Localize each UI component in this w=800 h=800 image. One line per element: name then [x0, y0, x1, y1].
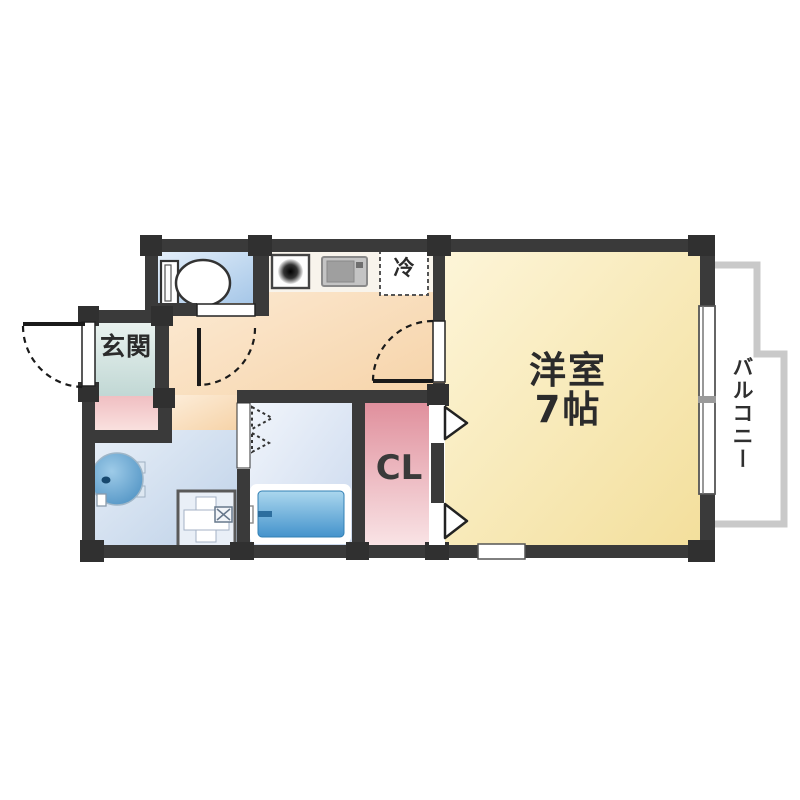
toilet-door-jamb [197, 304, 255, 316]
entrance-label: 玄関 [94, 334, 158, 360]
washing-machine-pan-icon [178, 491, 235, 548]
hall-passage-floor [165, 395, 237, 430]
main-room-label: 洋室 7帖 [498, 352, 638, 430]
wall-bottom-right [525, 545, 715, 558]
main-room-size: 7帖 [498, 391, 638, 430]
wall-bath-right [352, 390, 365, 558]
bathtub-icon [244, 484, 351, 544]
wall-bath-closet-top [237, 390, 445, 403]
mainroom-door-jamb [433, 321, 445, 382]
entrance-door [23, 324, 85, 387]
bottom-window [478, 544, 525, 559]
balcony-label: バルコニー [731, 356, 753, 526]
floor-plan-page: 玄関 洋室 7帖 CL バルコニー 冷 [0, 0, 800, 800]
main-room-name: 洋室 [498, 352, 638, 391]
floor-plan-drawing [0, 0, 800, 800]
fridge-label: 冷 [380, 257, 428, 279]
entrance-step [95, 396, 158, 432]
closet-label: CL [365, 451, 433, 487]
wall-left-lower [82, 386, 95, 558]
wall-washroom-top [85, 430, 172, 443]
bathroom-door-jamb [237, 403, 250, 468]
balcony-window [698, 306, 716, 494]
stove-icon [272, 255, 309, 288]
toilet-icon [161, 260, 230, 306]
kitchen-sink-icon [322, 257, 367, 286]
wall-bottom-left [82, 545, 478, 558]
